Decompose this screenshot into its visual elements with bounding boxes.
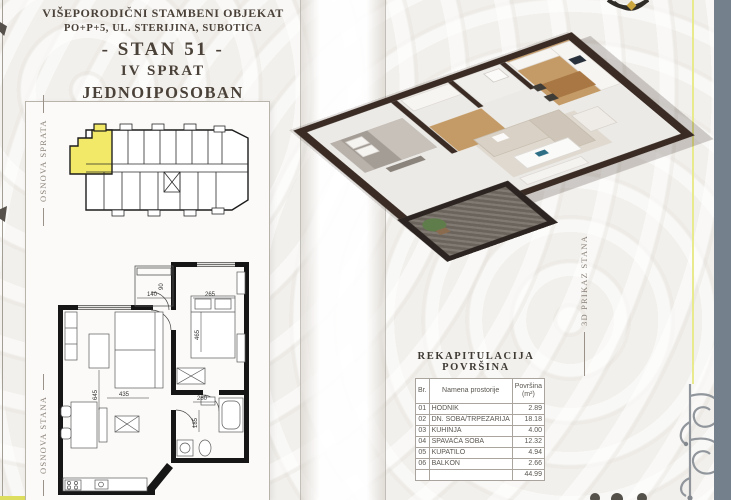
table-row: 03 KUHINJA 4.00	[416, 426, 545, 437]
table-row: 05 KUPATILO 4.94	[416, 448, 545, 459]
table-row: 01 HODNIK 2.89	[416, 404, 545, 415]
col-header-area: Površina (m²)	[512, 379, 544, 404]
dim-bedroom-depth: 465	[195, 329, 201, 340]
label-rule	[584, 332, 585, 376]
table-header-row: Br. Namena prostorije Površina (m²)	[416, 379, 545, 404]
label-rule	[43, 480, 44, 496]
top-ornament-icon	[604, 0, 660, 20]
row-area: 4.00	[512, 426, 544, 437]
total-num	[416, 470, 430, 481]
bottom-ornament-icon	[586, 486, 658, 500]
row-area: 4.94	[512, 448, 544, 459]
building-floor-plan	[64, 116, 256, 226]
row-area: 18.18	[512, 415, 544, 426]
dim-balcony-width: 140	[147, 292, 158, 298]
row-name: DN. SOBA/TRPEZARIJA	[429, 415, 512, 426]
row-name: BALKON	[429, 459, 512, 470]
col-header-area-line2: (m²)	[515, 391, 542, 399]
dim-balcony-depth: 90	[159, 283, 165, 290]
balcony	[397, 181, 558, 262]
row-num: 05	[416, 448, 430, 459]
apartment-type: JEDNOIPOSOBAN	[26, 83, 300, 103]
label-rule	[43, 95, 44, 113]
dim-bath-width: 280	[197, 396, 208, 402]
row-name: KUHINJA	[429, 426, 512, 437]
total-name	[429, 470, 512, 481]
building-title: VIŠEPORODIČNI STAMBENI OBJEKAT	[26, 6, 300, 21]
area-table: Br. Namena prostorije Površina (m²) 01 H…	[415, 378, 545, 481]
unit-plan-label: OSNOVA STANA	[38, 374, 48, 496]
render-3d	[286, 4, 692, 264]
dim-bath-depth: 185	[193, 417, 199, 428]
row-area: 12.32	[512, 437, 544, 448]
floor-label: IV SPRAT	[26, 63, 300, 80]
floor-plan-label: OSNOVA SPRATA	[38, 95, 48, 226]
wardrobe	[400, 83, 462, 111]
label-rule	[43, 208, 44, 226]
row-num: 04	[416, 437, 430, 448]
left-edge-rule	[2, 0, 3, 500]
brochure-page: VIŠEPORODIČNI STAMBENI OBJEKAT PO+P+5, U…	[0, 0, 731, 500]
row-area: 2.89	[512, 404, 544, 415]
dim-living-width: 435	[119, 392, 130, 398]
table-total-row: 44.99	[416, 470, 545, 481]
title-block: VIŠEPORODIČNI STAMBENI OBJEKAT PO+P+5, U…	[26, 6, 300, 103]
row-num: 06	[416, 459, 430, 470]
dim-bedroom-width: 265	[205, 292, 216, 298]
floor-plan-label-text: OSNOVA SPRATA	[38, 119, 48, 202]
row-name: KUPATILO	[429, 448, 512, 459]
yellow-accent-line-vertical	[692, 0, 694, 384]
dim-living-depth: 645	[93, 389, 99, 400]
render-3d-floorplate	[293, 32, 695, 234]
building-address: PO+P+5, UL. STERIJINA, SUBOTICA	[26, 23, 300, 34]
table-row: 06 BALKON 2.66	[416, 459, 545, 470]
balcony-outline	[135, 266, 173, 306]
apartment-number: - STAN 51 -	[26, 39, 300, 61]
row-name: SPAVAĆA SOBA	[429, 437, 512, 448]
table-row: 02 DN. SOBA/TRPEZARIJA 18.18	[416, 415, 545, 426]
table-row: 04 SPAVAĆA SOBA 12.32	[416, 437, 545, 448]
row-num: 01	[416, 404, 430, 415]
row-num: 02	[416, 415, 430, 426]
col-header-area-line1: Površina	[515, 383, 542, 391]
total-area: 44.99	[512, 470, 544, 481]
row-area: 2.66	[512, 459, 544, 470]
col-header-name: Namena prostorije	[429, 379, 512, 404]
unit-floor-plan: 140 90 265 465 645 435 280 185	[53, 250, 261, 498]
row-num: 03	[416, 426, 430, 437]
right-edge-strip	[714, 0, 731, 500]
unit-plan-label-text: OSNOVA STANA	[38, 396, 48, 474]
col-header-num: Br.	[416, 379, 430, 404]
label-rule	[43, 374, 44, 390]
row-name: HODNIK	[429, 404, 512, 415]
area-table-title: REKAPITULACIJA POVRŠINA	[388, 351, 564, 373]
